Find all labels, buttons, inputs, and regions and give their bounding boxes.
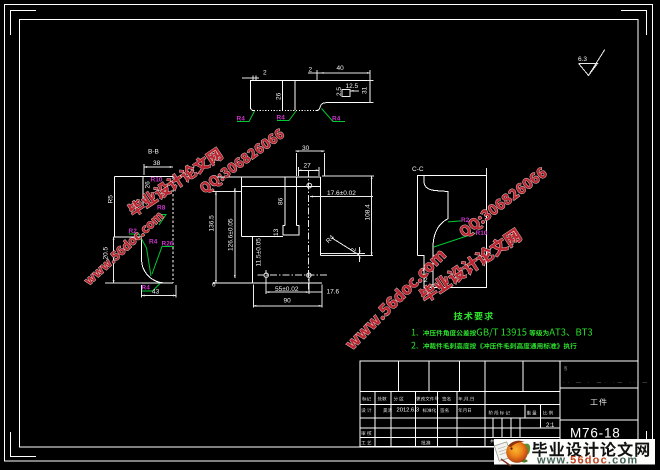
svg-text:R5: R5: [108, 195, 115, 204]
svg-text:31: 31: [362, 86, 369, 94]
svg-text:30: 30: [302, 145, 310, 152]
svg-text:M76-18: M76-18: [570, 426, 621, 441]
svg-text:17.6: 17.6: [327, 289, 340, 296]
svg-text:136.5: 136.5: [209, 215, 216, 232]
svg-text:86: 86: [278, 197, 285, 205]
svg-text:20.5: 20.5: [103, 246, 110, 259]
svg-text:C-C: C-C: [412, 166, 424, 173]
svg-text:43: 43: [152, 289, 160, 296]
svg-text:B-B: B-B: [148, 149, 159, 156]
svg-text:27: 27: [304, 163, 312, 170]
svg-text:§: §: [564, 366, 567, 372]
svg-text:13: 13: [273, 228, 280, 236]
svg-text:6.3: 6.3: [578, 56, 587, 63]
svg-text:·· — · —· ·— ·· —: ·· — · —· ·— ·· —: [563, 380, 650, 385]
svg-text:17.6±0.02: 17.6±0.02: [327, 190, 356, 197]
svg-text:26: 26: [276, 92, 283, 100]
svg-text:90: 90: [284, 298, 292, 305]
svg-text:2: 2: [309, 67, 313, 74]
svg-text:2: 2: [351, 248, 358, 252]
svg-text:R8: R8: [157, 205, 166, 212]
svg-text:108.4: 108.4: [365, 204, 372, 221]
svg-text:R4: R4: [142, 285, 151, 292]
svg-text:12.5: 12.5: [346, 83, 359, 90]
svg-text:6: 6: [212, 282, 216, 289]
svg-text:2: 2: [263, 70, 267, 77]
svg-text:38: 38: [153, 160, 161, 167]
svg-text:2.5: 2.5: [336, 87, 343, 96]
svg-text:2:1: 2:1: [546, 423, 555, 429]
svg-text:40: 40: [337, 65, 345, 72]
svg-text:R10: R10: [476, 230, 488, 237]
svg-text:11.5±0.05: 11.5±0.05: [256, 238, 263, 267]
svg-text:www.56doc.com: www.56doc.com: [536, 455, 638, 467]
svg-text:126.6±0.05: 126.6±0.05: [228, 218, 235, 251]
svg-text:R10: R10: [151, 177, 163, 184]
svg-text:R4: R4: [149, 239, 158, 246]
svg-text:2012.6.3: 2012.6.3: [397, 408, 420, 414]
svg-text:55±0.02: 55±0.02: [275, 286, 299, 293]
